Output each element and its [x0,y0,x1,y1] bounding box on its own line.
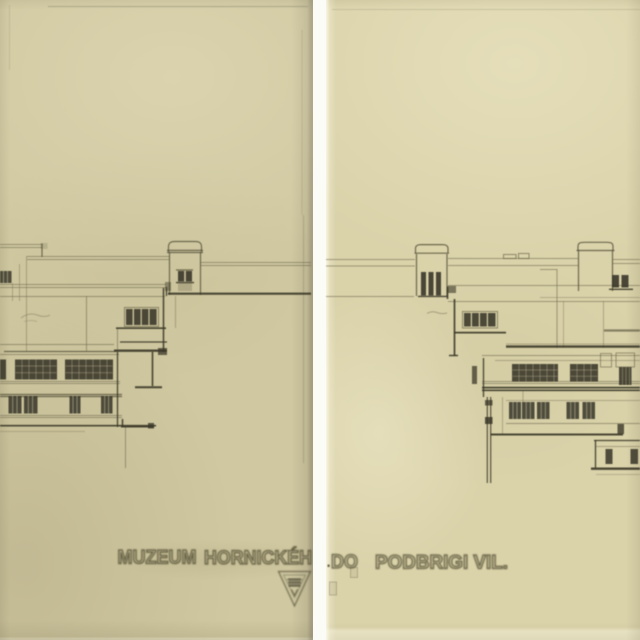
svg-text:HORNICKÉH: HORNICKÉH [204,547,312,569]
svg-text:PODBRIGI VIL.: PODBRIGI VIL. [375,553,508,574]
svg-text:MUZEUM: MUZEUM [118,548,197,569]
